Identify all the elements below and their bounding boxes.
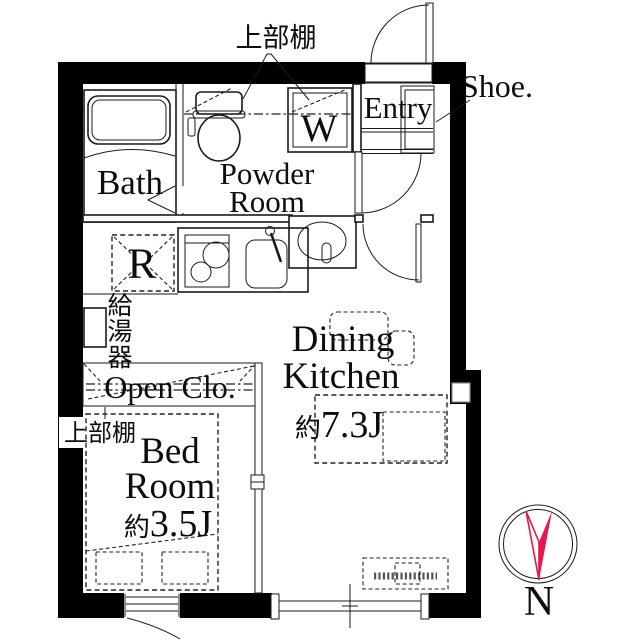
bath-label: Bath (97, 163, 164, 202)
entry-label: Entry (364, 90, 433, 125)
wall-right-lower (466, 382, 481, 618)
bath-floor-curve (84, 149, 175, 158)
shoe-label: Shoe. (461, 68, 533, 104)
pipe-space-box (452, 383, 470, 402)
faucet-spout (271, 233, 281, 262)
upper-shelf-left-label: 上部棚 (64, 420, 136, 447)
bath-outline (84, 90, 176, 222)
hall-wall-stub-left (355, 215, 363, 222)
bedroom-exterior-door (125, 594, 180, 639)
tv-board-inner (395, 563, 420, 584)
dining-kitchen-label-line1: Dining (292, 319, 395, 360)
compass: N (499, 505, 577, 625)
dk-door-leaf (416, 224, 421, 282)
bed-pillow-right (162, 552, 208, 584)
dining-kitchen-label-line2: Kitchen (282, 356, 399, 397)
hall-wall-stub-right (421, 215, 433, 222)
water-heater-label: 給 湯 器 (107, 292, 132, 372)
open-closet-label: Open Clo. (104, 369, 236, 405)
dk-window (271, 584, 429, 628)
toilet-control (188, 118, 195, 136)
hall-door-leaf (355, 152, 362, 213)
basin-alcove (289, 216, 356, 268)
wall-top-left (58, 62, 365, 84)
sliding-door-handle (251, 482, 264, 489)
water-heater-char-2: 湯 (107, 318, 132, 346)
door-swing-arc (127, 618, 180, 639)
washer-label: W (301, 107, 338, 150)
north-arrow-left-blade (526, 511, 539, 580)
wall-bottom-2 (180, 593, 272, 618)
powder-entry-wall (353, 84, 361, 152)
entry-opening (365, 63, 432, 83)
wall-bottom-1 (58, 593, 124, 618)
bed-pillow-left (96, 552, 142, 584)
closet-corner-line (240, 364, 256, 381)
kitchen-sink (246, 240, 287, 288)
dining-sofa-inner (383, 412, 445, 461)
water-heater-box (84, 308, 106, 347)
water-heater-char-3: 器 (107, 345, 132, 372)
compass-north-label: N (524, 579, 554, 625)
dining-kitchen-size-prefix: 約 (295, 414, 321, 443)
burner-small (191, 262, 211, 282)
dining-kitchen-size-label: 約7.3J (295, 404, 383, 446)
wall-left (58, 62, 83, 618)
hall-door-swing-arc (361, 153, 421, 213)
water-heater-char-1: 給 (107, 292, 132, 320)
wall-right-upper (450, 62, 466, 382)
sliding-door-handle (251, 475, 264, 482)
refrigerator-label: R (128, 241, 157, 288)
bedroom-size-prefix: 約 (124, 513, 150, 542)
north-arrow-right-blade (539, 511, 552, 580)
floorplan-svg: N 上部棚 Bath Powder Room W Entry Shoe. R 給… (0, 0, 640, 640)
toilet-bowl (198, 115, 240, 161)
floorplan-page: N 上部棚 Bath Powder Room W Entry Shoe. R 給… (0, 0, 640, 640)
bedroom-size-label: 約3.5J (124, 503, 212, 545)
dining-kitchen-size-value: 7.3J (321, 404, 383, 446)
entry-door (365, 3, 433, 83)
dk-door-swing-arc (363, 224, 419, 280)
entry-door-leaf (426, 3, 433, 63)
bedroom-label-line2: Room (125, 466, 216, 507)
bathtub-outer (88, 96, 170, 144)
window-jamb-right (421, 594, 429, 619)
powder-room-label-line2: Room (229, 184, 305, 219)
upper-shelf-top-label: 上部棚 (236, 23, 317, 53)
window-jamb-left (271, 594, 279, 619)
bathtub-inner (92, 100, 166, 140)
entry-door-swing-arc (371, 5, 429, 63)
bedroom-size-value: 3.5J (150, 503, 212, 545)
closet-corner-line (84, 364, 100, 381)
